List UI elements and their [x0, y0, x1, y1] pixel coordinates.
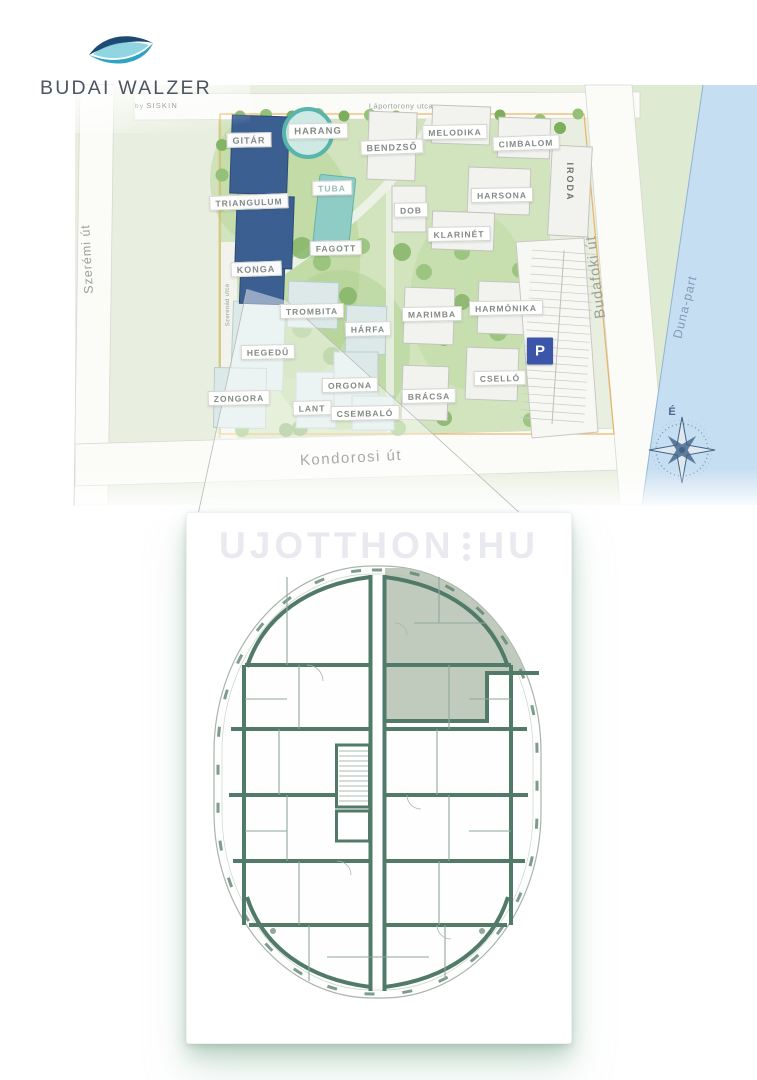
map-label-harang: HARANG	[288, 122, 348, 139]
map-label-szeremi-ut: Szerémi út	[78, 224, 96, 294]
floor-plan	[187, 513, 571, 1043]
map-label-tuba: TUBA	[312, 180, 352, 196]
column	[479, 928, 485, 934]
map-label-triangulum: TRIANGULUM	[209, 193, 289, 211]
map-label-iroda: IRODA	[565, 163, 575, 202]
page: { "logo": { "title": "BUDAI WALZER", "by…	[0, 0, 757, 1080]
floor-plan-card: UJOTTHON HU	[186, 512, 572, 1044]
map-label-fagott: FAGOTT	[310, 240, 363, 256]
map-label-orgona: ORGONA	[322, 377, 379, 393]
map-label-marimba: MARIMBA	[402, 306, 462, 322]
map-label-gitar: GITÁR	[226, 132, 271, 148]
elevator	[337, 811, 370, 841]
logo-byline: bySISKIN	[40, 101, 178, 110]
map-label-budafoki-ut: Budafoki út	[583, 235, 609, 320]
map-label-harmonika: HARMÓNIKA	[469, 300, 543, 316]
map-label-csembalo: CSEMBALÓ	[331, 405, 400, 421]
logo-title: BUDAI WALZER	[40, 77, 180, 100]
stair-core	[337, 745, 370, 841]
watermark-colon-icon	[463, 532, 470, 561]
budai-walzer-logo-icon	[84, 27, 158, 77]
watermark: UJOTTHON HU	[187, 525, 571, 567]
map-label-parking: P	[527, 338, 553, 365]
map-label-duna-part: Duna-part	[670, 274, 699, 340]
watermark-right: HU	[478, 525, 539, 567]
map-label-klarinet: KLARINÉT	[427, 226, 490, 242]
logo-byline-prefix: by	[135, 103, 144, 110]
logo-byline-brand: SISKIN	[146, 101, 178, 110]
map-label-konga: KONGA	[231, 261, 282, 278]
column	[270, 928, 276, 934]
map-label-dob: DOB	[394, 202, 428, 218]
map-label-kondorosi-ut: Kondorosi út	[300, 447, 403, 469]
map-label-melodika: MELODIKA	[422, 124, 488, 140]
map-label-compass-north: É	[668, 406, 675, 418]
map-label-szerenad-utca: Szerenád utca	[225, 284, 232, 327]
map-label-harsona: HARSONA	[471, 187, 533, 203]
map-label-bracsa: BRÁCSA	[402, 388, 457, 404]
map-label-trombita: TROMBITA	[280, 303, 344, 319]
map-label-bendzso: BENDZSŐ	[360, 138, 424, 155]
map-label-csello: CSELLÓ	[474, 370, 527, 386]
map-label-zongora: ZONGORA	[208, 390, 271, 406]
map-label-lant: LANT	[293, 400, 332, 416]
map-label-cimbalom: CIMBALOM	[492, 134, 559, 151]
watermark-left: UJOTTHON	[219, 525, 455, 567]
map-label-laportorony-utca: Láportorony utca	[369, 102, 433, 111]
map-label-harfa: HÁRFA	[345, 321, 392, 337]
map-label-hegedu: HEGEDŰ	[241, 344, 296, 360]
